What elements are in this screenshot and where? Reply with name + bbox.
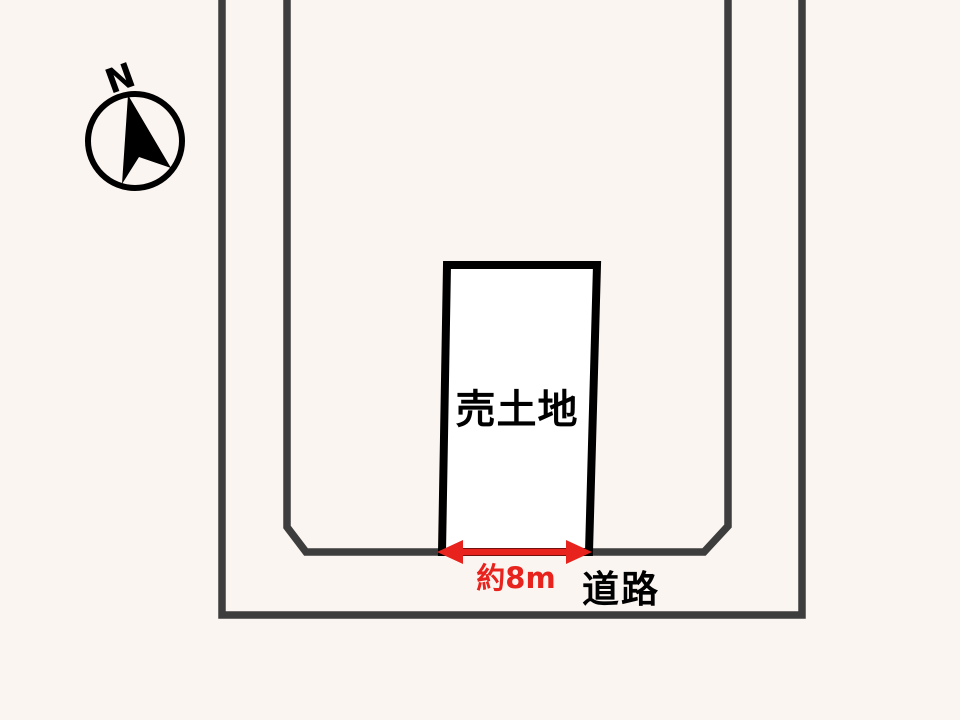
site-plan-canvas: 売土地 約8m 道路 N xyxy=(0,0,960,720)
road-label: 道路 xyxy=(582,568,660,611)
land-plot-label: 売土地 xyxy=(456,387,579,433)
frontage-dimension-label: 約8m xyxy=(476,561,555,595)
site-plan: 売土地 約8m 道路 N xyxy=(0,0,960,720)
